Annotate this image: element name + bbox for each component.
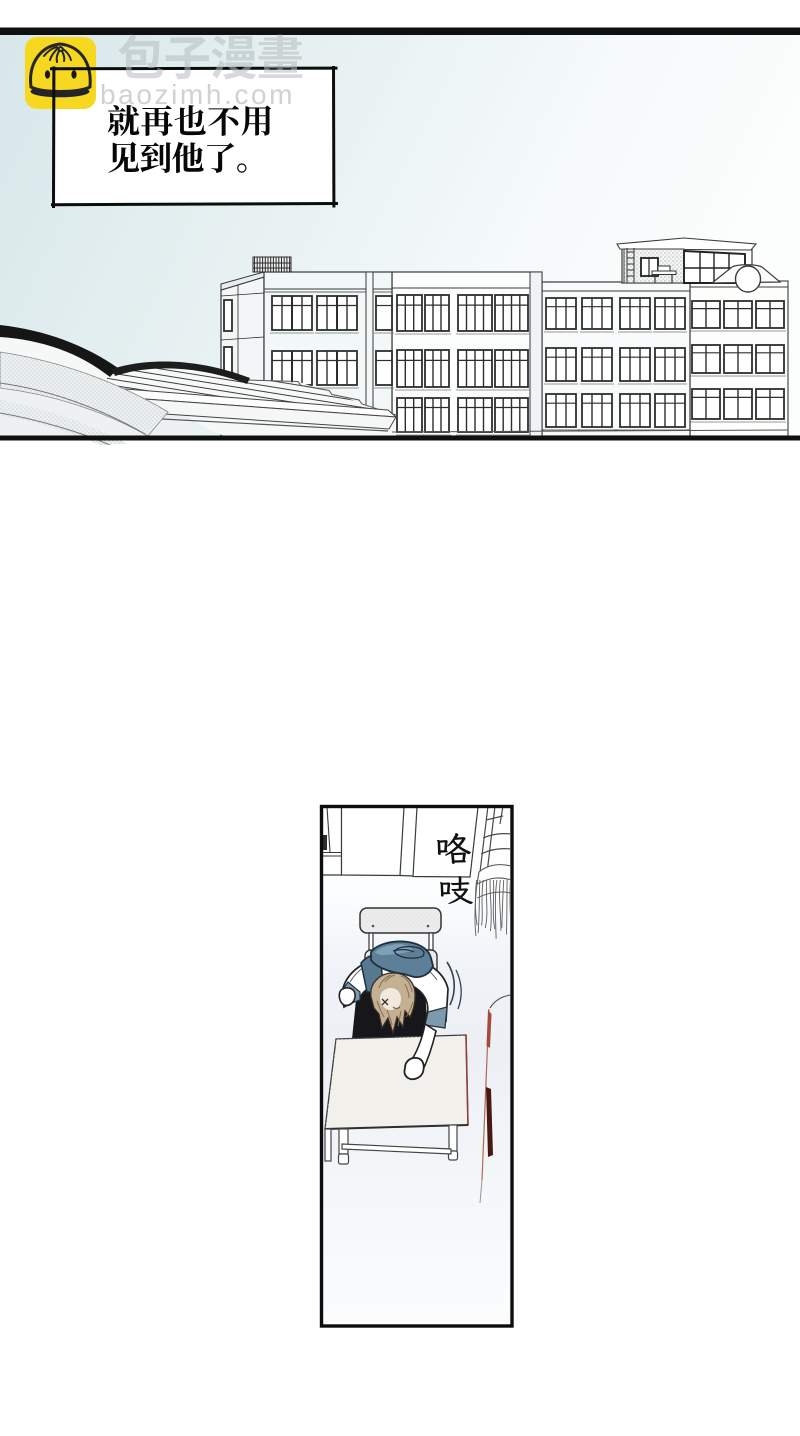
svg-text:baozimh.com: baozimh.com — [100, 79, 295, 110]
